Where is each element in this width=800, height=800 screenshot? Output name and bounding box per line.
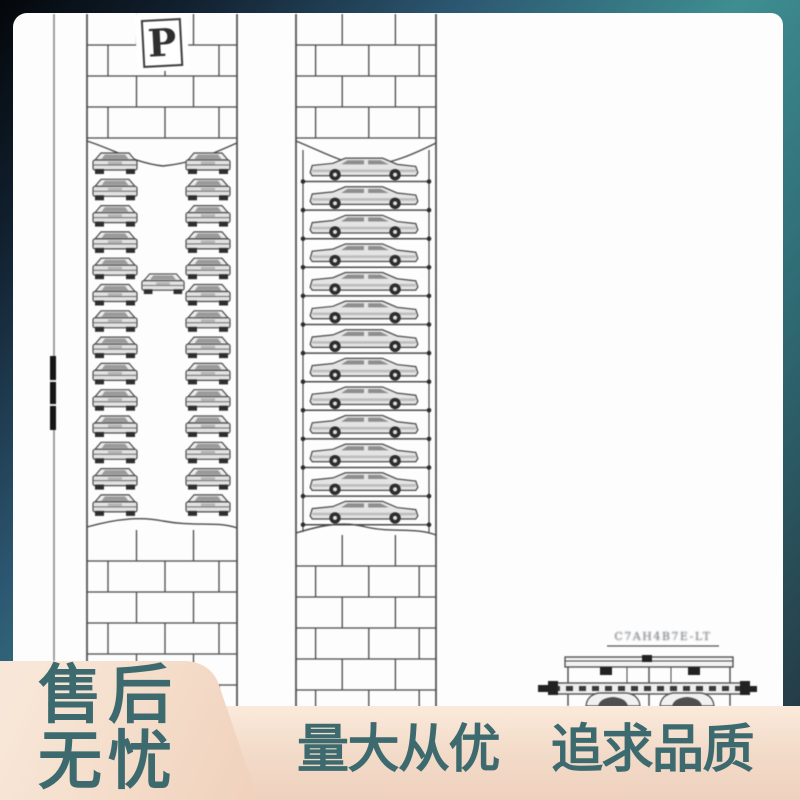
promo-image: P C7AH4B7E-LT 售后 无忧 量大从优 追求品质 (0, 0, 800, 800)
detail-part-number: C7AH4B7E-LT (614, 630, 711, 643)
after-sales-line2: 无忧 (38, 728, 178, 794)
banner-text-left: 量大从优 (297, 724, 499, 776)
site-boundary-line (50, 14, 56, 661)
after-sales-line1: 售后 (38, 662, 178, 728)
banner-text-right: 追求品质 (551, 724, 753, 776)
left-parking-tower (87, 14, 237, 716)
right-parking-tower (296, 14, 436, 721)
after-sales-text: 售后 无忧 (38, 662, 178, 794)
parking-sign-letter: P (147, 19, 178, 65)
parking-sign: P (135, 13, 190, 72)
banner-text: 量大从优 追求品质 (297, 724, 753, 776)
lift-detail-drawing: C7AH4B7E-LT (538, 630, 757, 706)
